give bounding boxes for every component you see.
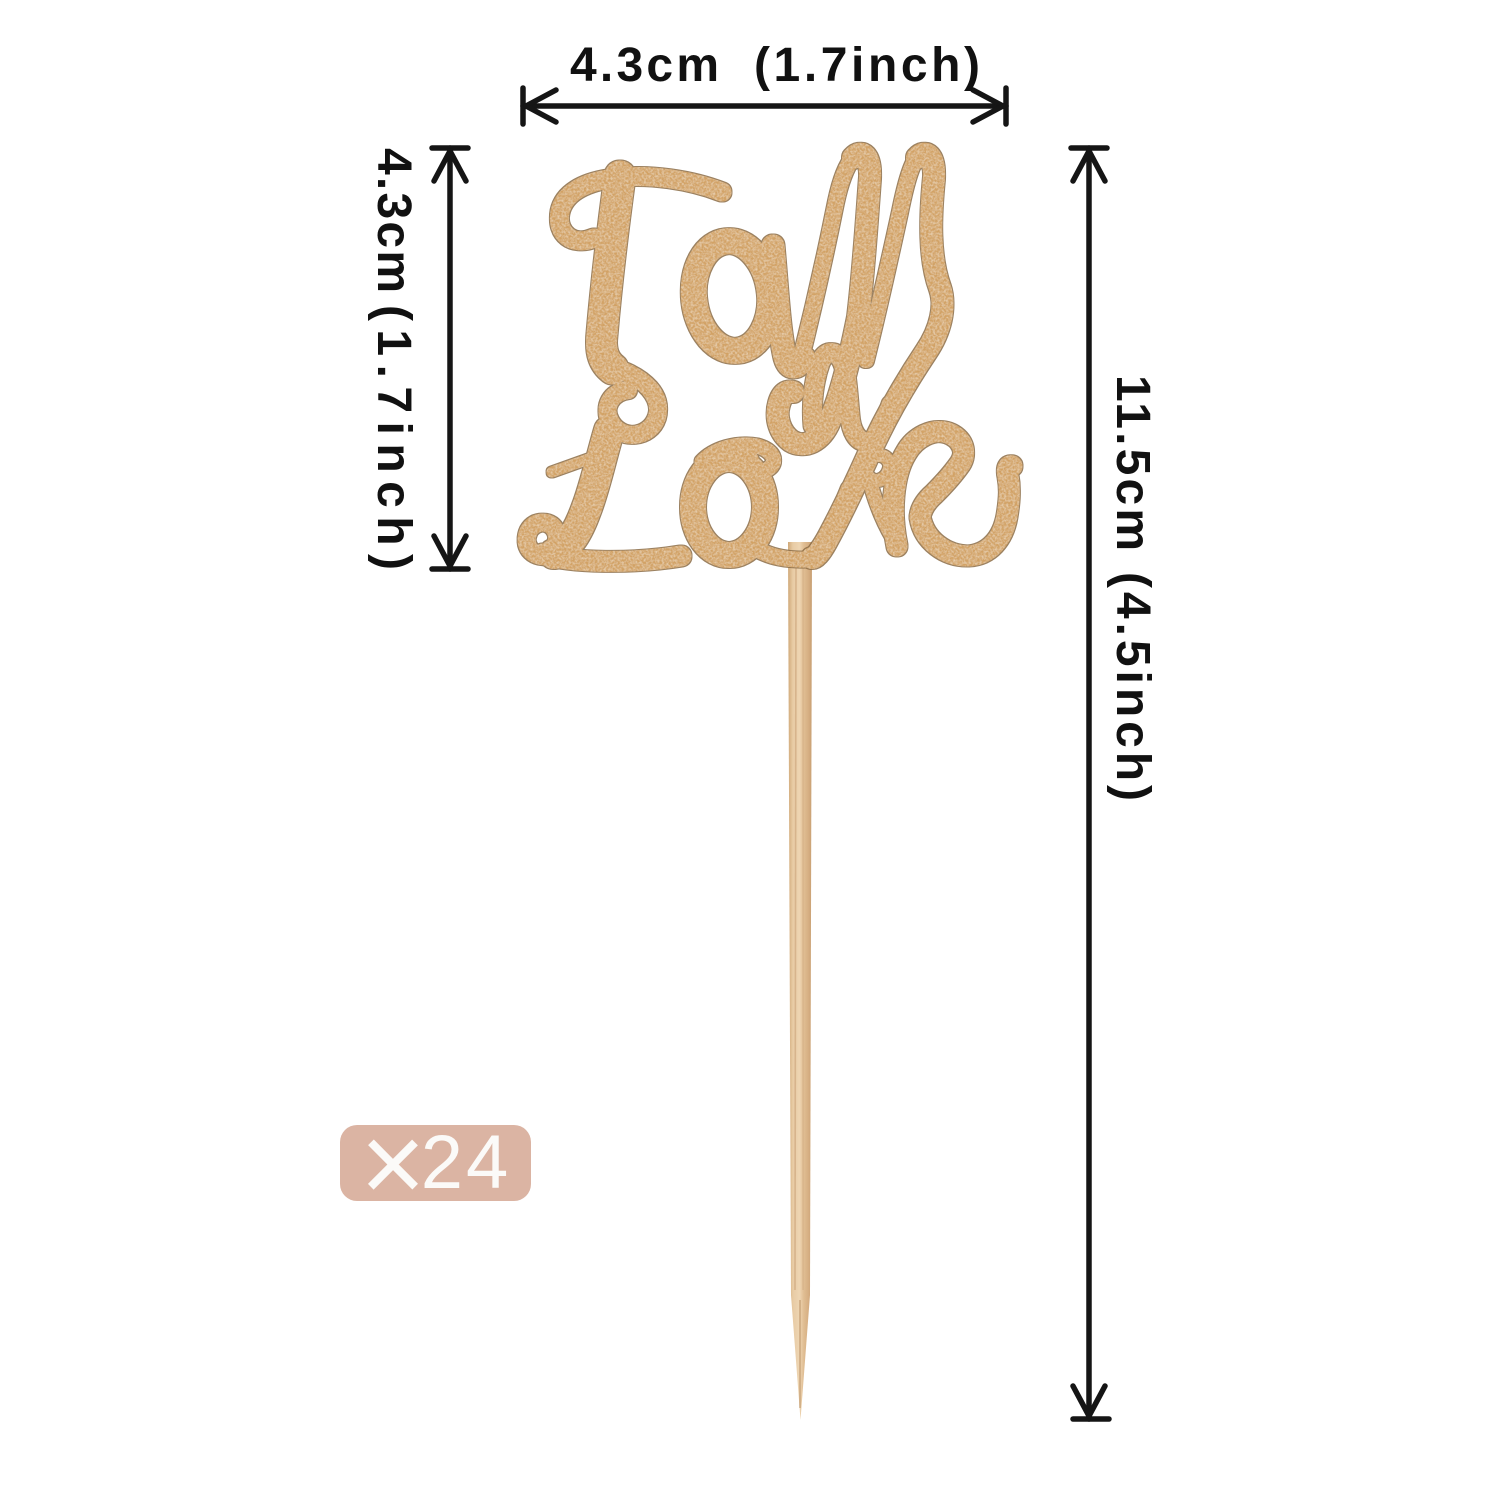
svg-text:4.3cm: 4.3cm — [570, 39, 719, 92]
svg-text:(4.5inch): (4.5inch) — [1106, 572, 1159, 801]
svg-text:24: 24 — [421, 1120, 512, 1205]
svg-text:×: × — [360, 1101, 425, 1226]
svg-text:(1.7inch): (1.7inch) — [367, 305, 420, 570]
svg-text:4.3cm: 4.3cm — [367, 148, 420, 293]
svg-text:(1.7inch): (1.7inch) — [754, 39, 980, 92]
svg-text:11.5cm: 11.5cm — [1106, 375, 1159, 551]
